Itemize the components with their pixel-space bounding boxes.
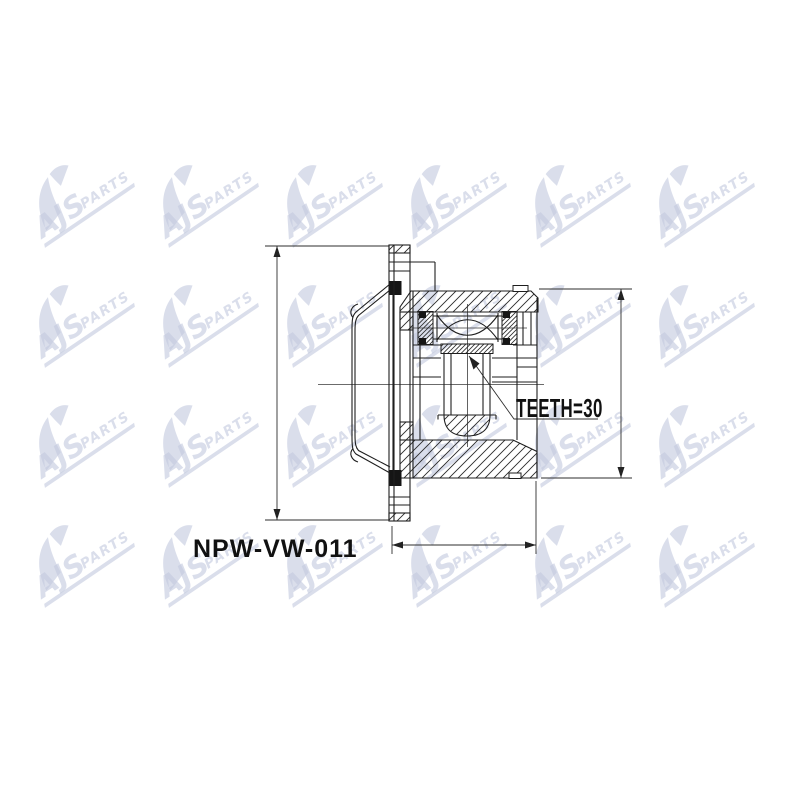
dimension-left (265, 246, 389, 520)
dimension-bottom (392, 481, 536, 554)
flange-top-cap (389, 245, 410, 253)
cv-joint-cross-section-drawing: AJS PARTS (0, 0, 800, 800)
housing-wall-block-top (400, 312, 413, 330)
boot-bellows (351, 284, 393, 473)
housing-top-wall (400, 291, 538, 312)
shaft-end-dome (444, 415, 490, 436)
spline-collar (441, 344, 493, 354)
housing-bottom-wall (400, 440, 537, 478)
boot-clamp-top (390, 281, 402, 295)
outline-linework (351, 245, 537, 521)
flange-bottom-cap (389, 513, 410, 521)
housing-wall-block-bottom (400, 422, 413, 440)
boot-clamp-bottom (390, 470, 402, 486)
splined-shaft (438, 353, 496, 420)
teeth-count-label: TEETH=30 (516, 393, 603, 424)
part-number-label: NPW-VW-011 (193, 535, 358, 564)
parts-catalog-image: AJS PARTS (0, 0, 800, 800)
dimension-right (539, 289, 632, 478)
